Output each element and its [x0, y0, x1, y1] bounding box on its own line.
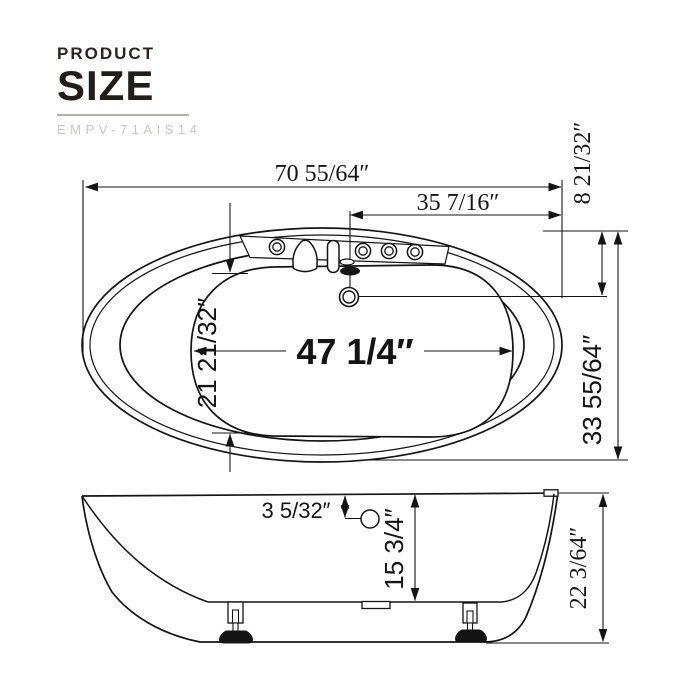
right-leg-bolt	[467, 611, 473, 623]
dim-basin-width-label: 21 21/32″	[192, 298, 222, 408]
right-leg-stem	[468, 623, 473, 630]
diagram-canvas: PRODUCT SIZE EMPV-71AIS14	[0, 0, 700, 700]
deck-dark-oval	[340, 267, 360, 276]
dim-basin-length-label: 47 1/4″	[296, 331, 413, 372]
side-inner-wall-right	[502, 494, 554, 602]
size-diagram: 70 55/64″ 35 7/16″ 8 21/32″ 33 55/64″ 21…	[0, 0, 700, 700]
faucet-lever-icon	[328, 241, 340, 273]
top-view-diagram: 70 55/64″ 35 7/16″ 8 21/32″ 33 55/64″ 21…	[82, 122, 628, 472]
bottom-drain-fitting	[362, 602, 390, 609]
left-leg-bolt	[233, 610, 239, 623]
side-view-diagram: 3 5/32″ 15 3/4″ 22 3/64″	[82, 490, 609, 644]
left-leg-stem	[233, 623, 238, 631]
overflow-drain-circle	[361, 510, 379, 528]
right-leg-foot	[455, 630, 487, 643]
dim-overall-length-label: 70 55/64″	[275, 161, 370, 187]
dim-drain-offset-y-label: 8 21/32″	[570, 122, 596, 205]
dim-overall-width-label: 33 55/64″	[577, 335, 607, 445]
dim-overflow-drop-label: 3 5/32″	[262, 498, 331, 523]
side-inner-wall-left	[82, 496, 208, 602]
side-rim-line	[82, 493, 544, 496]
side-rim-corner	[544, 490, 558, 496]
left-leg-foot	[219, 631, 253, 644]
deck-small-oval	[340, 259, 354, 265]
dim-inner-depth-label: 15 3/4″	[379, 508, 409, 590]
dim-overall-height-label: 22 3/64″	[566, 527, 592, 610]
dim-drain-offset-x-label: 35 7/16″	[417, 190, 500, 216]
